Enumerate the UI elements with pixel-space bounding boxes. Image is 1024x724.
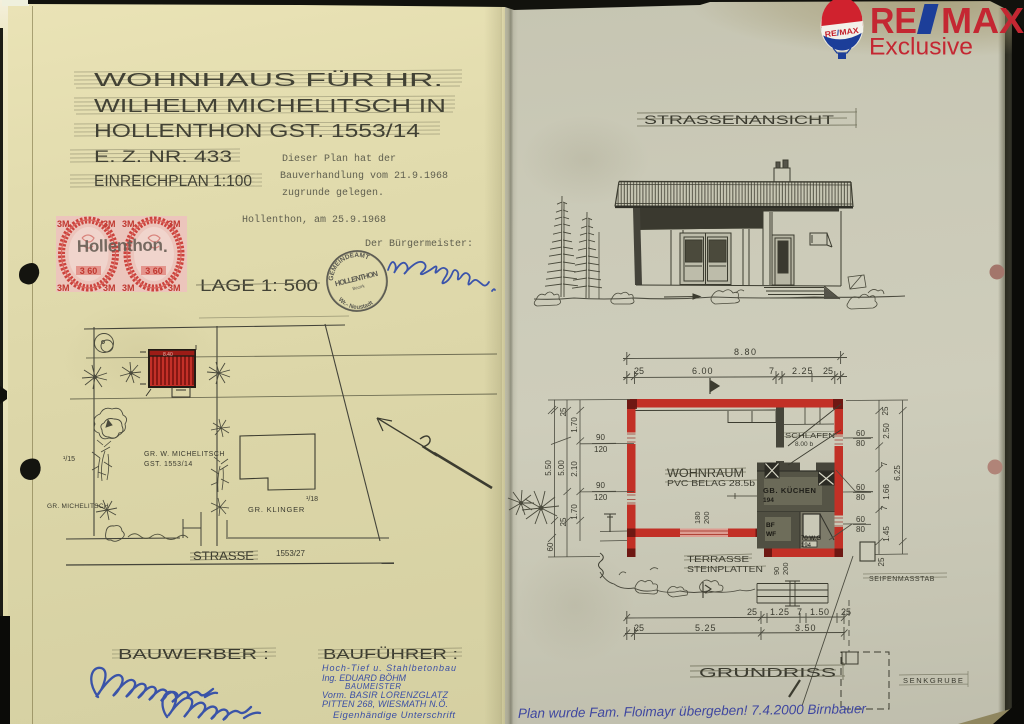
svg-text:3M: 3M bbox=[57, 283, 70, 293]
svg-text:zugrunde gelegen.: zugrunde gelegen. bbox=[282, 187, 384, 199]
svg-text:SENKGRUBE: SENKGRUBE bbox=[903, 676, 965, 685]
svg-text:PITTEN 268, WIESMATH N.Ö.: PITTEN 268, WIESMATH N.Ö. bbox=[322, 699, 448, 709]
svg-text:1.25: 1.25 bbox=[770, 607, 790, 617]
svg-text:25: 25 bbox=[559, 407, 568, 416]
svg-text:90: 90 bbox=[596, 433, 605, 442]
svg-text:7: 7 bbox=[880, 505, 889, 510]
svg-text:3 60: 3 60 bbox=[145, 266, 163, 276]
svg-text:1.70: 1.70 bbox=[570, 504, 579, 520]
svg-text:7: 7 bbox=[797, 607, 802, 617]
svg-text:6.25: 6.25 bbox=[893, 465, 902, 481]
svg-text:120: 120 bbox=[594, 493, 608, 502]
svg-text:120: 120 bbox=[594, 445, 608, 454]
svg-text:200: 200 bbox=[702, 511, 711, 524]
svg-text:GRUNDRISS: GRUNDRISS bbox=[699, 665, 837, 680]
svg-text:25: 25 bbox=[877, 557, 886, 566]
svg-text:60: 60 bbox=[856, 515, 865, 524]
svg-text:EINREICHPLAN 1:100: EINREICHPLAN 1:100 bbox=[94, 173, 252, 190]
svg-text:GR. KLINGER: GR. KLINGER bbox=[248, 505, 305, 514]
svg-text:5.25: 5.25 bbox=[695, 623, 717, 633]
svg-text:1.66: 1.66 bbox=[882, 484, 891, 500]
svg-text:GB. KÜCHEN: GB. KÜCHEN bbox=[763, 486, 817, 495]
svg-text:25: 25 bbox=[634, 366, 644, 376]
svg-text:Plan wurde Fam. Floimayr überg: Plan wurde Fam. Floimayr übergeben! 7.4.… bbox=[518, 701, 867, 721]
svg-text:GR. MICHELITSCH: GR. MICHELITSCH bbox=[47, 503, 109, 510]
svg-text:Hoch-Tief u. Stahlbetonbau: Hoch-Tief u. Stahlbetonbau bbox=[322, 663, 456, 673]
svg-text:E. Z. NR. 433: E. Z. NR. 433 bbox=[94, 147, 232, 166]
svg-text:BF: BF bbox=[766, 522, 775, 529]
svg-text:3.50: 3.50 bbox=[795, 623, 817, 633]
svg-text:Wr.- Neustadt: Wr.- Neustadt bbox=[336, 290, 375, 317]
svg-text:GST. 1553/14: GST. 1553/14 bbox=[144, 461, 193, 468]
svg-text:80: 80 bbox=[856, 493, 865, 502]
svg-text:¹/18: ¹/18 bbox=[306, 496, 318, 503]
svg-text:BAUFÜHRER :: BAUFÜHRER : bbox=[323, 645, 458, 663]
svg-text:2.10: 2.10 bbox=[570, 461, 579, 477]
svg-text:1553/27: 1553/27 bbox=[276, 549, 305, 558]
svg-text:WILHELM MICHELITSCH IN: WILHELM MICHELITSCH IN bbox=[94, 96, 446, 116]
svg-text:HOLLENTHON GST. 1553/14: HOLLENTHON GST. 1553/14 bbox=[94, 121, 420, 141]
svg-text:LAGE 1: 500: LAGE 1: 500 bbox=[200, 276, 318, 295]
svg-text:.: . bbox=[163, 237, 168, 256]
svg-text:STEINPLATTEN: STEINPLATTEN bbox=[687, 564, 763, 574]
svg-text:Eigenhändige Unterschrift: Eigenhändige Unterschrift bbox=[333, 710, 455, 721]
svg-text:80: 80 bbox=[856, 525, 865, 534]
svg-text:Hollenthon: Hollenthon bbox=[77, 236, 163, 256]
svg-text:200: 200 bbox=[781, 562, 790, 575]
svg-text:3M: 3M bbox=[122, 219, 135, 229]
svg-text:Dieser Plan hat der: Dieser Plan hat der bbox=[282, 153, 396, 165]
svg-text:1.50: 1.50 bbox=[810, 607, 830, 617]
svg-text:3 60: 3 60 bbox=[80, 266, 98, 276]
svg-text:3M: 3M bbox=[57, 219, 70, 229]
svg-text:Bauverhandlung vom 21.9.1968: Bauverhandlung vom 21.9.1968 bbox=[280, 170, 448, 182]
svg-text:3M: 3M bbox=[168, 219, 181, 229]
svg-text:Der Bürgermeister:: Der Bürgermeister: bbox=[365, 238, 473, 250]
svg-text:2.50: 2.50 bbox=[882, 423, 891, 439]
svg-text:3M: 3M bbox=[122, 283, 135, 293]
svg-text:2.25: 2.25 bbox=[792, 366, 814, 376]
svg-text:8.00 b: 8.00 b bbox=[795, 441, 813, 448]
svg-text:5.00: 5.00 bbox=[557, 460, 566, 476]
svg-text:GR. W. MICHELITSCH: GR. W. MICHELITSCH bbox=[144, 451, 225, 458]
svg-text:194: 194 bbox=[763, 497, 774, 504]
svg-text:8.40: 8.40 bbox=[163, 352, 173, 358]
svg-text:3M: 3M bbox=[168, 283, 181, 293]
svg-text:6.00: 6.00 bbox=[692, 366, 714, 376]
svg-text:90: 90 bbox=[596, 481, 605, 490]
svg-text:Hollenthon, am 25.9.1968: Hollenthon, am 25.9.1968 bbox=[242, 214, 386, 226]
svg-text:25: 25 bbox=[823, 366, 833, 376]
svg-text:1.70: 1.70 bbox=[570, 417, 579, 433]
svg-text:WOHNHAUS FÜR HR.: WOHNHAUS FÜR HR. bbox=[94, 70, 443, 90]
svg-text:60: 60 bbox=[856, 429, 865, 438]
svg-text:90: 90 bbox=[772, 567, 781, 575]
svg-text:1.45: 1.45 bbox=[882, 526, 891, 542]
svg-text:8.80: 8.80 bbox=[734, 347, 758, 357]
svg-text:7: 7 bbox=[880, 461, 889, 466]
svg-text:70 W.G: 70 W.G bbox=[801, 536, 821, 542]
svg-text:Bezirk: Bezirk bbox=[352, 283, 366, 291]
svg-text:3M: 3M bbox=[103, 219, 116, 229]
svg-text:80: 80 bbox=[856, 439, 865, 448]
svg-text:60: 60 bbox=[546, 542, 555, 551]
svg-text:25: 25 bbox=[559, 517, 568, 526]
svg-text:25: 25 bbox=[747, 607, 757, 617]
svg-text:3M: 3M bbox=[103, 283, 116, 293]
svg-text:60: 60 bbox=[856, 483, 865, 492]
svg-text:¹/15: ¹/15 bbox=[63, 456, 75, 463]
svg-text:5.50: 5.50 bbox=[544, 460, 553, 476]
svg-text:25: 25 bbox=[881, 406, 890, 415]
svg-text:194: 194 bbox=[801, 543, 812, 549]
svg-text:7: 7 bbox=[769, 366, 774, 376]
svg-text:180: 180 bbox=[693, 511, 702, 524]
svg-text:WF: WF bbox=[766, 531, 776, 538]
svg-text:Exclusive: Exclusive bbox=[869, 34, 973, 61]
